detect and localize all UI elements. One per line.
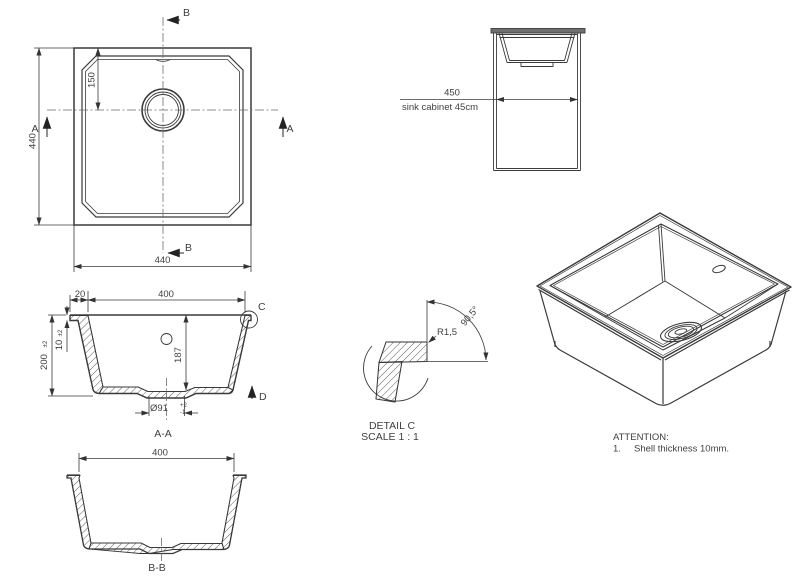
iso-drain bbox=[659, 319, 704, 346]
plan-bowl-opening-inner bbox=[86, 60, 240, 214]
bb-title: B-B bbox=[148, 562, 166, 574]
countertop bbox=[491, 29, 585, 34]
drawing-canvas: 440 150 440 B B A A bbox=[0, 0, 800, 579]
detail-radius-leader bbox=[429, 336, 437, 343]
bb-hatched-walls bbox=[67, 476, 246, 554]
cabinet-drain-fitting bbox=[521, 63, 553, 67]
aa-view-d-label: D bbox=[259, 391, 267, 403]
bb-outline bbox=[67, 475, 246, 554]
aa-dim-depth: 200 bbox=[39, 354, 50, 370]
cabinet-sink-bowl bbox=[497, 33, 577, 67]
cabinet-view: 450 sink cabinet 45cm bbox=[400, 29, 585, 171]
iso-rim-outer bbox=[537, 213, 791, 358]
iso-rim-inner-edge bbox=[554, 227, 775, 345]
aa-overflow-hole bbox=[161, 334, 172, 345]
detail-scale: SCALE 1 : 1 bbox=[361, 431, 419, 443]
aa-title: A-A bbox=[154, 428, 172, 440]
aa-dim-depth-tol: ±2 bbox=[43, 340, 49, 347]
cabinet-sides bbox=[494, 33, 581, 171]
attention-item-text: Shell thickness 10mm. bbox=[634, 444, 729, 455]
iso-bowl-bottom bbox=[605, 281, 725, 350]
aa-dim-drain: Ø91 bbox=[150, 403, 168, 414]
iso-overflow-hole bbox=[712, 264, 726, 274]
detail-c-view: R1,5 90,5° DETAIL C SCALE 1 : 1 bbox=[361, 300, 488, 443]
isometric-view bbox=[537, 213, 791, 405]
section-bb: 400 B-B bbox=[67, 448, 246, 575]
aa-dim-rim-thickness: 10 bbox=[54, 340, 65, 351]
bb-inner-lines bbox=[79, 475, 234, 548]
plan-dim-drain-offset: 150 bbox=[87, 72, 98, 88]
cabinet-dim-width: 450 bbox=[444, 88, 460, 99]
aa-dim-inner-width: 400 bbox=[158, 289, 174, 300]
plan-dimensions bbox=[34, 48, 251, 272]
plan-label-b-top: B bbox=[183, 7, 190, 19]
detail-hatched-section bbox=[376, 342, 427, 402]
aa-hatched-walls bbox=[70, 316, 251, 399]
iso-rim-outer-edge bbox=[540, 216, 788, 356]
attention-item-number: 1. bbox=[613, 444, 621, 455]
plan-dim-height: 440 bbox=[28, 133, 39, 149]
plan-label-a-right: A bbox=[286, 123, 293, 135]
plan-outer-edge bbox=[74, 48, 251, 225]
attention-note: ATTENTION: 1. Shell thickness 10mm. bbox=[613, 432, 729, 455]
detail-angle-label: 90,5° bbox=[459, 304, 482, 328]
section-aa: 20 400 200 ±2 10 ±2 187 Ø91 +2 -1 C D A-… bbox=[39, 289, 267, 440]
plan-bowl-opening-outer bbox=[82, 56, 243, 217]
plan-label-a-left: A bbox=[31, 123, 38, 135]
aa-dim-rim-overhang: 20 bbox=[75, 289, 86, 300]
bb-dim-inner-width: 400 bbox=[152, 448, 168, 459]
aa-dim-rim-thickness-tol: ±2 bbox=[58, 329, 64, 336]
technical-drawing-page: { "plan_view": { "section_b_top": "B", "… bbox=[0, 0, 800, 579]
plan-label-b-bottom: B bbox=[185, 242, 192, 254]
aa-dim-drain-tol-lower: -1 bbox=[180, 410, 186, 416]
aa-dim-drain-tol-upper: +2 bbox=[180, 403, 188, 409]
plan-view: 440 150 440 B B A A bbox=[28, 7, 294, 272]
iso-rim-inner bbox=[550, 224, 778, 347]
cabinet-label: sink cabinet 45cm bbox=[402, 102, 478, 113]
aa-dim-inner-depth: 187 bbox=[173, 347, 184, 363]
aa-detail-c-label: C bbox=[258, 301, 266, 313]
detail-radius-label: R1,5 bbox=[437, 327, 457, 338]
plan-dim-width: 440 bbox=[155, 255, 171, 266]
attention-heading: ATTENTION: bbox=[613, 432, 669, 443]
